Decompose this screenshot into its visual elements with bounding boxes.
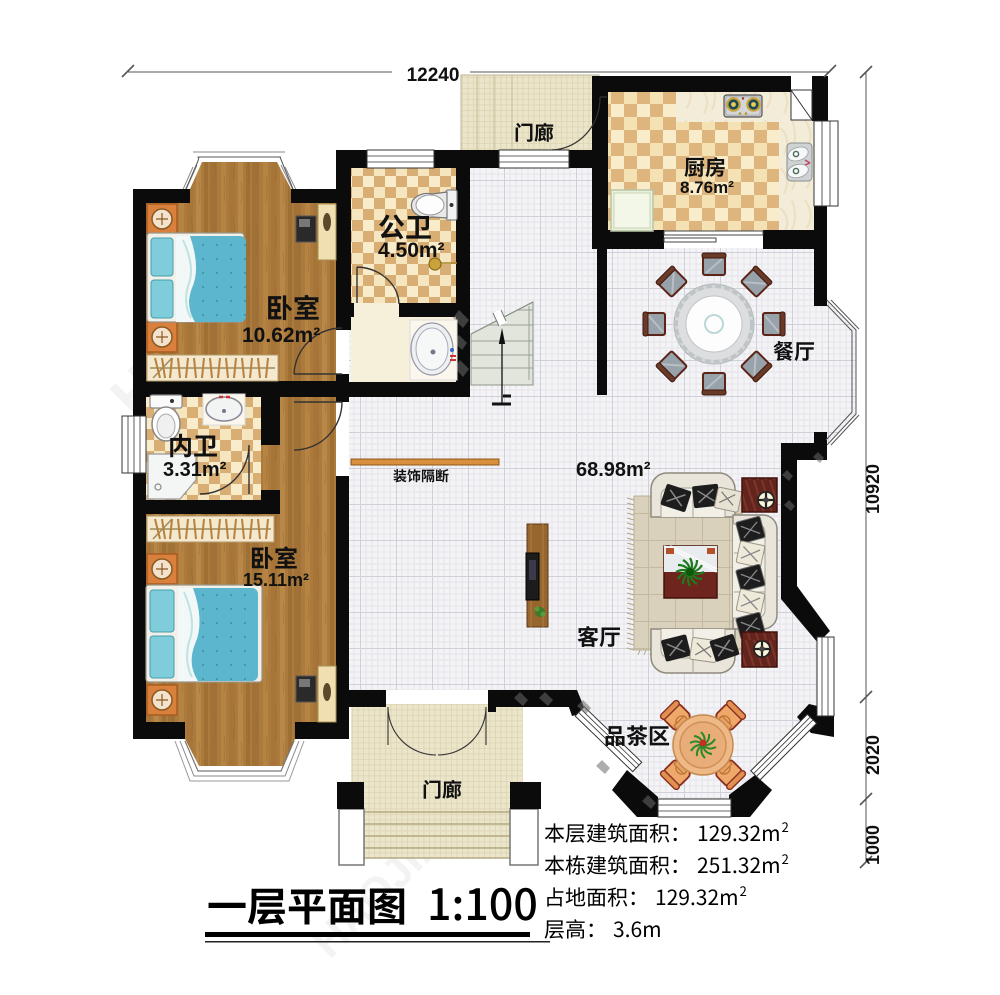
- svg-text:2020: 2020: [863, 735, 883, 775]
- svg-text:10.62m²: 10.62m²: [242, 324, 320, 347]
- svg-text:1000: 1000: [863, 825, 883, 865]
- svg-text:15.11m²: 15.11m²: [243, 570, 309, 590]
- svg-text:4.50m²: 4.50m²: [378, 239, 445, 262]
- svg-text:8.76m²: 8.76m²: [680, 178, 734, 197]
- svg-text:12240: 12240: [407, 65, 460, 86]
- svg-text:3.31m²: 3.31m²: [163, 459, 227, 481]
- svg-text:10920: 10920: [863, 464, 883, 514]
- svg-text:68.98m²: 68.98m²: [576, 459, 651, 481]
